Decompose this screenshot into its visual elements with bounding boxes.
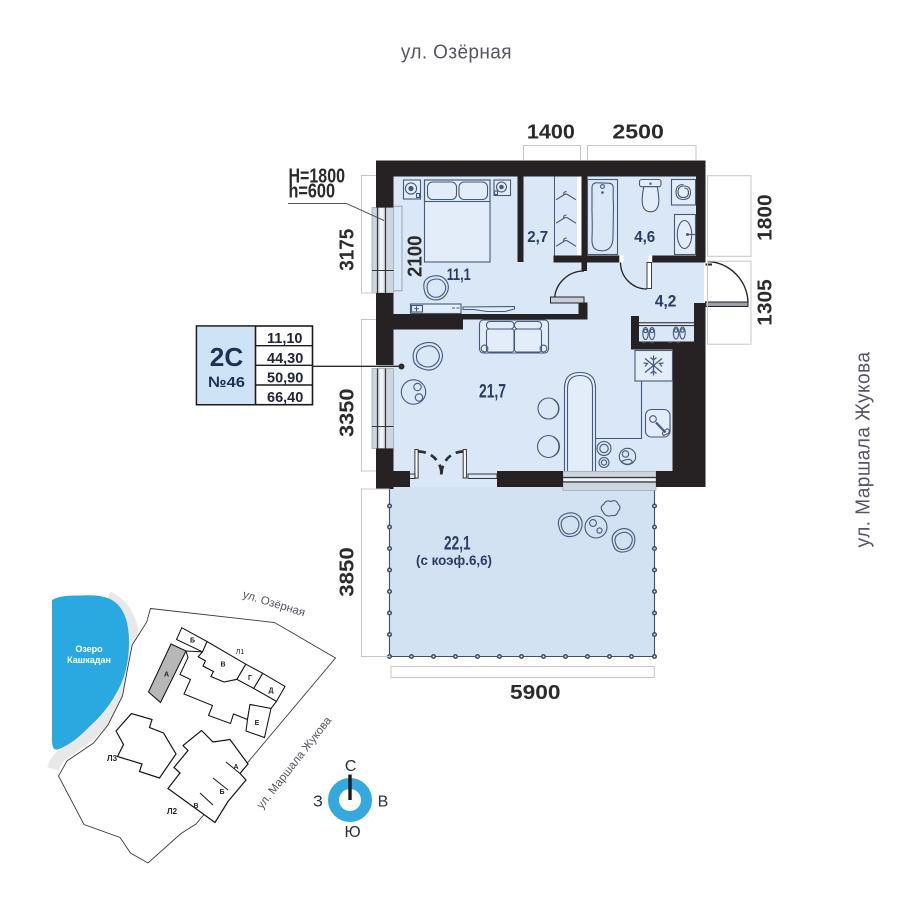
svg-text:2,7: 2,7: [527, 229, 548, 246]
svg-text:Г: Г: [248, 675, 252, 682]
svg-text:С: С: [345, 758, 357, 775]
svg-text:11,1: 11,1: [447, 265, 471, 284]
svg-text:4,6: 4,6: [634, 229, 655, 246]
svg-text:Л2: Л2: [167, 807, 178, 816]
svg-text:3350: 3350: [337, 388, 359, 437]
svg-text:№46: №46: [208, 374, 245, 391]
svg-text:Озеро: Озеро: [75, 644, 103, 654]
svg-text:Ю: Ю: [345, 824, 361, 841]
svg-text:А: А: [233, 764, 238, 771]
svg-text:1305: 1305: [755, 279, 777, 326]
svg-text:(с коэф.6,6): (с коэф.6,6): [416, 553, 492, 568]
svg-text:44,30: 44,30: [267, 351, 303, 367]
svg-text:А: А: [164, 672, 169, 679]
svg-text:В: В: [193, 803, 198, 810]
svg-text:4,2: 4,2: [655, 292, 677, 311]
svg-text:h=600: h=600: [289, 181, 336, 203]
svg-text:2100: 2100: [405, 235, 427, 277]
svg-text:З: З: [313, 794, 323, 811]
svg-text:Кашкадан: Кашкадан: [67, 655, 111, 665]
svg-text:ул. Озёрная: ул. Озёрная: [401, 42, 512, 64]
svg-text:3175: 3175: [337, 229, 359, 271]
svg-text:Б: Б: [219, 789, 224, 796]
svg-text:1800: 1800: [755, 194, 777, 241]
svg-text:50,90: 50,90: [267, 370, 303, 386]
svg-text:Е: Е: [255, 720, 260, 727]
svg-text:21,7: 21,7: [479, 382, 506, 403]
svg-text:22,1: 22,1: [444, 534, 471, 555]
svg-text:Б: Б: [190, 638, 195, 645]
svg-text:5900: 5900: [510, 682, 561, 704]
svg-text:1400: 1400: [527, 122, 575, 144]
svg-text:66,40: 66,40: [267, 390, 303, 406]
svg-text:ул. Маршала Жукова: ул. Маршала Жукова: [853, 351, 875, 547]
svg-text:В: В: [378, 794, 389, 811]
svg-text:Д: Д: [269, 688, 274, 695]
svg-text:3850: 3850: [337, 547, 359, 597]
svg-text:Л3: Л3: [107, 754, 118, 763]
svg-text:2С: 2С: [210, 342, 244, 372]
svg-text:2500: 2500: [612, 122, 664, 144]
svg-text:Л1: Л1: [236, 649, 245, 656]
svg-text:11,10: 11,10: [267, 331, 303, 347]
svg-text:В: В: [220, 662, 225, 669]
